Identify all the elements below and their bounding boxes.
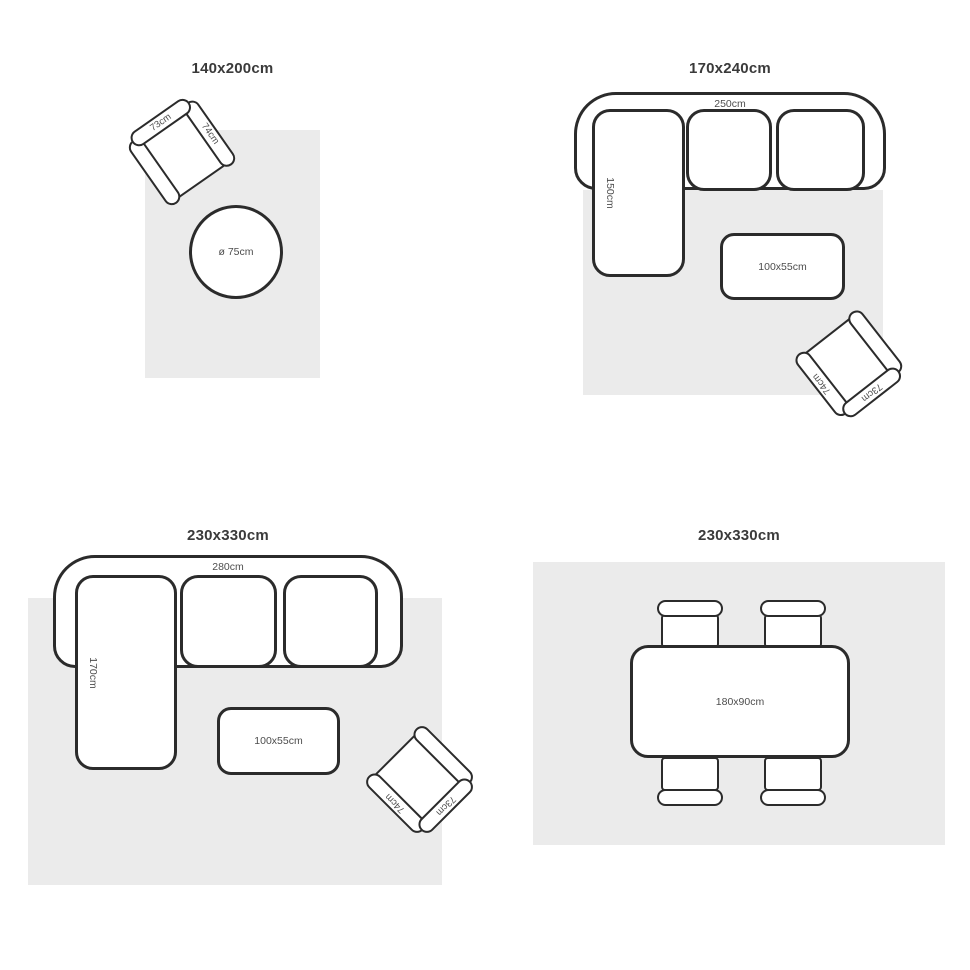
dining-chair <box>760 757 826 806</box>
coffee-table-size-label: 100x55cm <box>758 261 806 273</box>
dining-chair-back <box>657 789 723 806</box>
dining-chair-seat <box>661 614 719 648</box>
dining-chair <box>657 757 723 806</box>
dining-chair <box>760 600 826 649</box>
panel-2-title: 170x240cm <box>575 60 885 77</box>
panel-3-sofa-chaise: 170cm <box>75 575 177 770</box>
panel-1-title: 140x200cm <box>145 60 320 77</box>
panel-1-round-table: ø 75cm <box>189 205 283 299</box>
round-table-diameter-label: ø 75cm <box>218 246 253 258</box>
panel-2-sofa-chaise: 150cm <box>592 109 685 277</box>
dining-table-size-label: 180x90cm <box>716 696 764 708</box>
panel-3-coffee-table: 100x55cm <box>217 707 340 775</box>
panel-3-title: 230x330cm <box>53 527 403 544</box>
dining-chair-back <box>760 789 826 806</box>
sofa-width-label: 280cm <box>56 561 400 573</box>
panel-2-coffee-table: 100x55cm <box>720 233 845 300</box>
dining-chair-seat <box>764 614 822 648</box>
dining-chair-seat <box>661 757 719 791</box>
dining-chair <box>657 600 723 649</box>
panel-4-title: 230x330cm <box>533 527 945 544</box>
dining-chair-back <box>657 600 723 617</box>
panel-3-sofa-cushion <box>180 575 277 668</box>
panel-4-dining-table: 180x90cm <box>630 645 850 758</box>
sofa-depth-label: 170cm <box>87 641 99 705</box>
sofa-depth-label: 150cm <box>604 161 616 225</box>
panel-3-sofa-cushion <box>283 575 378 668</box>
rug-size-guide-diagram: 140x200cm ø 75cm 74cm 73cm 170x240cm 250… <box>0 0 970 970</box>
panel-2-sofa-cushion <box>776 109 865 191</box>
coffee-table-size-label: 100x55cm <box>254 735 302 747</box>
panel-2-sofa-cushion <box>686 109 772 191</box>
dining-chair-seat <box>764 757 822 791</box>
dining-chair-back <box>760 600 826 617</box>
